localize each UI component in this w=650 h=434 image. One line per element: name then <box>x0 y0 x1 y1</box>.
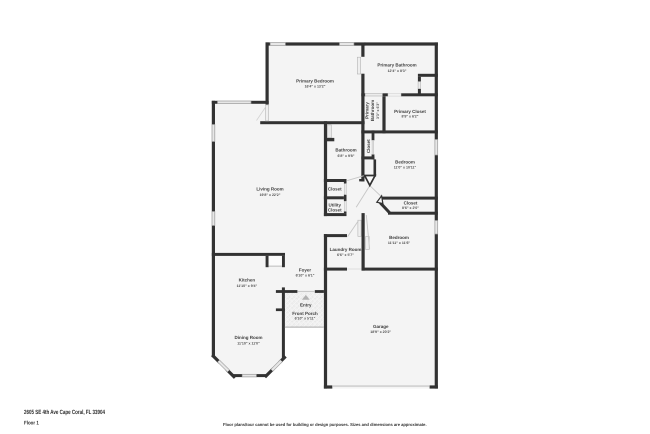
svg-text:8'6" x 2'0": 8'6" x 2'0" <box>402 206 419 210</box>
svg-text:Bathroom: Bathroom <box>370 100 375 121</box>
svg-text:Primary Bathroom: Primary Bathroom <box>377 63 416 68</box>
svg-text:6'8" x 9'8": 6'8" x 9'8" <box>338 154 355 158</box>
svg-text:6'6" x 5'7": 6'6" x 5'7" <box>337 253 354 257</box>
svg-text:Closet: Closet <box>328 208 342 213</box>
svg-text:19'8" x 22'2": 19'8" x 22'2" <box>260 193 281 197</box>
svg-text:11'11" x 11'6": 11'11" x 11'6" <box>388 241 411 245</box>
svg-text:Closet: Closet <box>404 200 418 205</box>
svg-text:3'3" x 6'3": 3'3" x 6'3" <box>376 102 380 119</box>
svg-text:6'10" x 5'11": 6'10" x 5'11" <box>295 317 316 321</box>
svg-text:Bedroom: Bedroom <box>389 235 409 240</box>
svg-text:18'9" x 20'2": 18'9" x 20'2" <box>370 330 391 334</box>
svg-text:Entry: Entry <box>300 303 312 308</box>
svg-text:11'10" x 11'0": 11'10" x 11'0" <box>237 341 260 345</box>
svg-text:Garage: Garage <box>373 324 389 329</box>
svg-text:Laundry Room: Laundry Room <box>330 247 362 252</box>
svg-text:16'4" x 13'2": 16'4" x 13'2" <box>305 84 326 88</box>
svg-text:Primary: Primary <box>365 102 370 119</box>
svg-text:Closet: Closet <box>366 139 371 153</box>
svg-text:11'0" x 10'11": 11'0" x 10'11" <box>394 166 417 170</box>
svg-text:Bathroom: Bathroom <box>335 148 356 153</box>
svg-text:6'10" x 6'1": 6'10" x 6'1" <box>296 274 315 278</box>
svg-text:Foyer: Foyer <box>299 268 312 273</box>
svg-text:8'9" x 6'2": 8'9" x 6'2" <box>402 114 419 118</box>
svg-text:Floor plans/tour cannot be use: Floor plans/tour cannot be used for buil… <box>223 422 427 427</box>
svg-text:Living Room: Living Room <box>256 186 283 191</box>
svg-text:11'10" x 9'4": 11'10" x 9'4" <box>237 284 258 288</box>
svg-text:12'4" x 8'3": 12'4" x 8'3" <box>388 69 407 73</box>
svg-text:Primary Bedroom: Primary Bedroom <box>296 79 334 84</box>
svg-text:2605 SE 4th Ave Cape Coral, FL: 2605 SE 4th Ave Cape Coral, FL 33904 <box>24 409 105 416</box>
svg-text:Primary Closet: Primary Closet <box>394 109 426 114</box>
svg-text:Bedroom: Bedroom <box>395 160 415 165</box>
svg-text:Utility: Utility <box>329 202 342 207</box>
svg-text:Dining Room: Dining Room <box>235 335 263 340</box>
svg-text:Front Porch: Front Porch <box>292 311 318 316</box>
svg-text:Kitchen: Kitchen <box>239 278 256 283</box>
svg-text:Closet: Closet <box>328 187 342 192</box>
svg-text:Floor 1: Floor 1 <box>24 421 39 427</box>
